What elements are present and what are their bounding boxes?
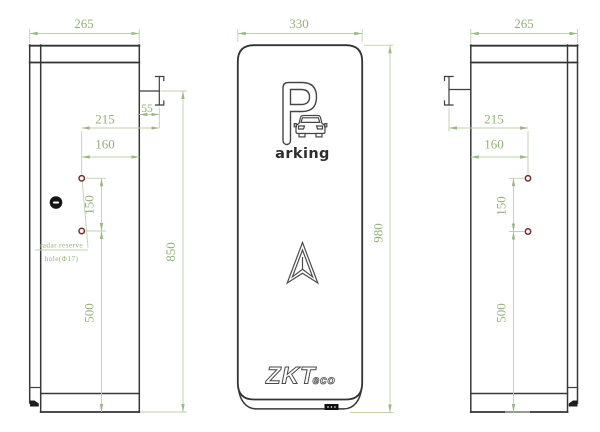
- brand-logo-eco: eco: [313, 373, 336, 387]
- left-side-view: 265 55 215 160 150 500 850 radar reserve…: [30, 16, 187, 412]
- front-view: 330 arking ZKT eco: [238, 16, 394, 413]
- dimension-label: 160: [484, 137, 504, 152]
- dimension-label: 330: [289, 16, 309, 31]
- dimension-label: 500: [82, 303, 97, 323]
- radar-note-line2: hole(Φ17): [45, 254, 79, 263]
- connector-dot: [334, 406, 336, 408]
- right-radar-hole-upper: [525, 176, 530, 181]
- car-mirror-right: [325, 124, 327, 127]
- car-windshield: [301, 118, 320, 123]
- dimension-label: 850: [163, 242, 178, 262]
- dimension-tick-line: [509, 178, 525, 231]
- left-adjusting-foot: [30, 401, 39, 407]
- dimension-label: 215: [95, 112, 115, 127]
- dimension-label: 980: [371, 223, 386, 243]
- dimension-extension-line: [471, 29, 578, 43]
- dimension-label: 55: [141, 103, 153, 115]
- connector-dot: [331, 406, 333, 408]
- right-side-view: 265 215 160 150 500: [445, 16, 578, 412]
- right-radar-hole-lower: [525, 229, 530, 234]
- car-wheel-left: [299, 134, 305, 137]
- left-radar-hole-lower: [79, 228, 84, 233]
- dimension-label: 215: [484, 112, 504, 127]
- dimension-extension-line: [30, 29, 140, 43]
- parking-logo-word: arking: [275, 146, 330, 162]
- left-door-lock-slot: [53, 202, 59, 204]
- dimension-label: 265: [74, 16, 94, 31]
- right-adjusting-foot: [569, 401, 578, 407]
- technical-drawing-canvas: 265 55 215 160 150 500 850 radar reserve…: [0, 0, 600, 432]
- dimension-label: 265: [514, 16, 534, 31]
- car-headlight-left: [299, 126, 305, 129]
- car-headlight-right: [317, 126, 323, 129]
- up-arrow-icon: [287, 243, 318, 284]
- car-icon: [294, 116, 327, 137]
- radar-note-line1: radar reserve: [40, 241, 83, 250]
- left-radar-hole-upper: [79, 176, 84, 181]
- car-mirror-left: [294, 124, 296, 127]
- car-wheel-right: [316, 134, 322, 137]
- front-cabinet-body: [238, 45, 362, 399]
- brand-logo-zkt: ZKT: [265, 363, 317, 390]
- dimension-label: 150: [494, 196, 509, 216]
- dimension-label: 160: [95, 137, 115, 152]
- barrier-gate-dimension-drawing: 265 55 215 160 150 500 850 radar reserve…: [0, 0, 600, 432]
- dimension-label: 500: [494, 303, 509, 323]
- connector-dot: [327, 406, 329, 408]
